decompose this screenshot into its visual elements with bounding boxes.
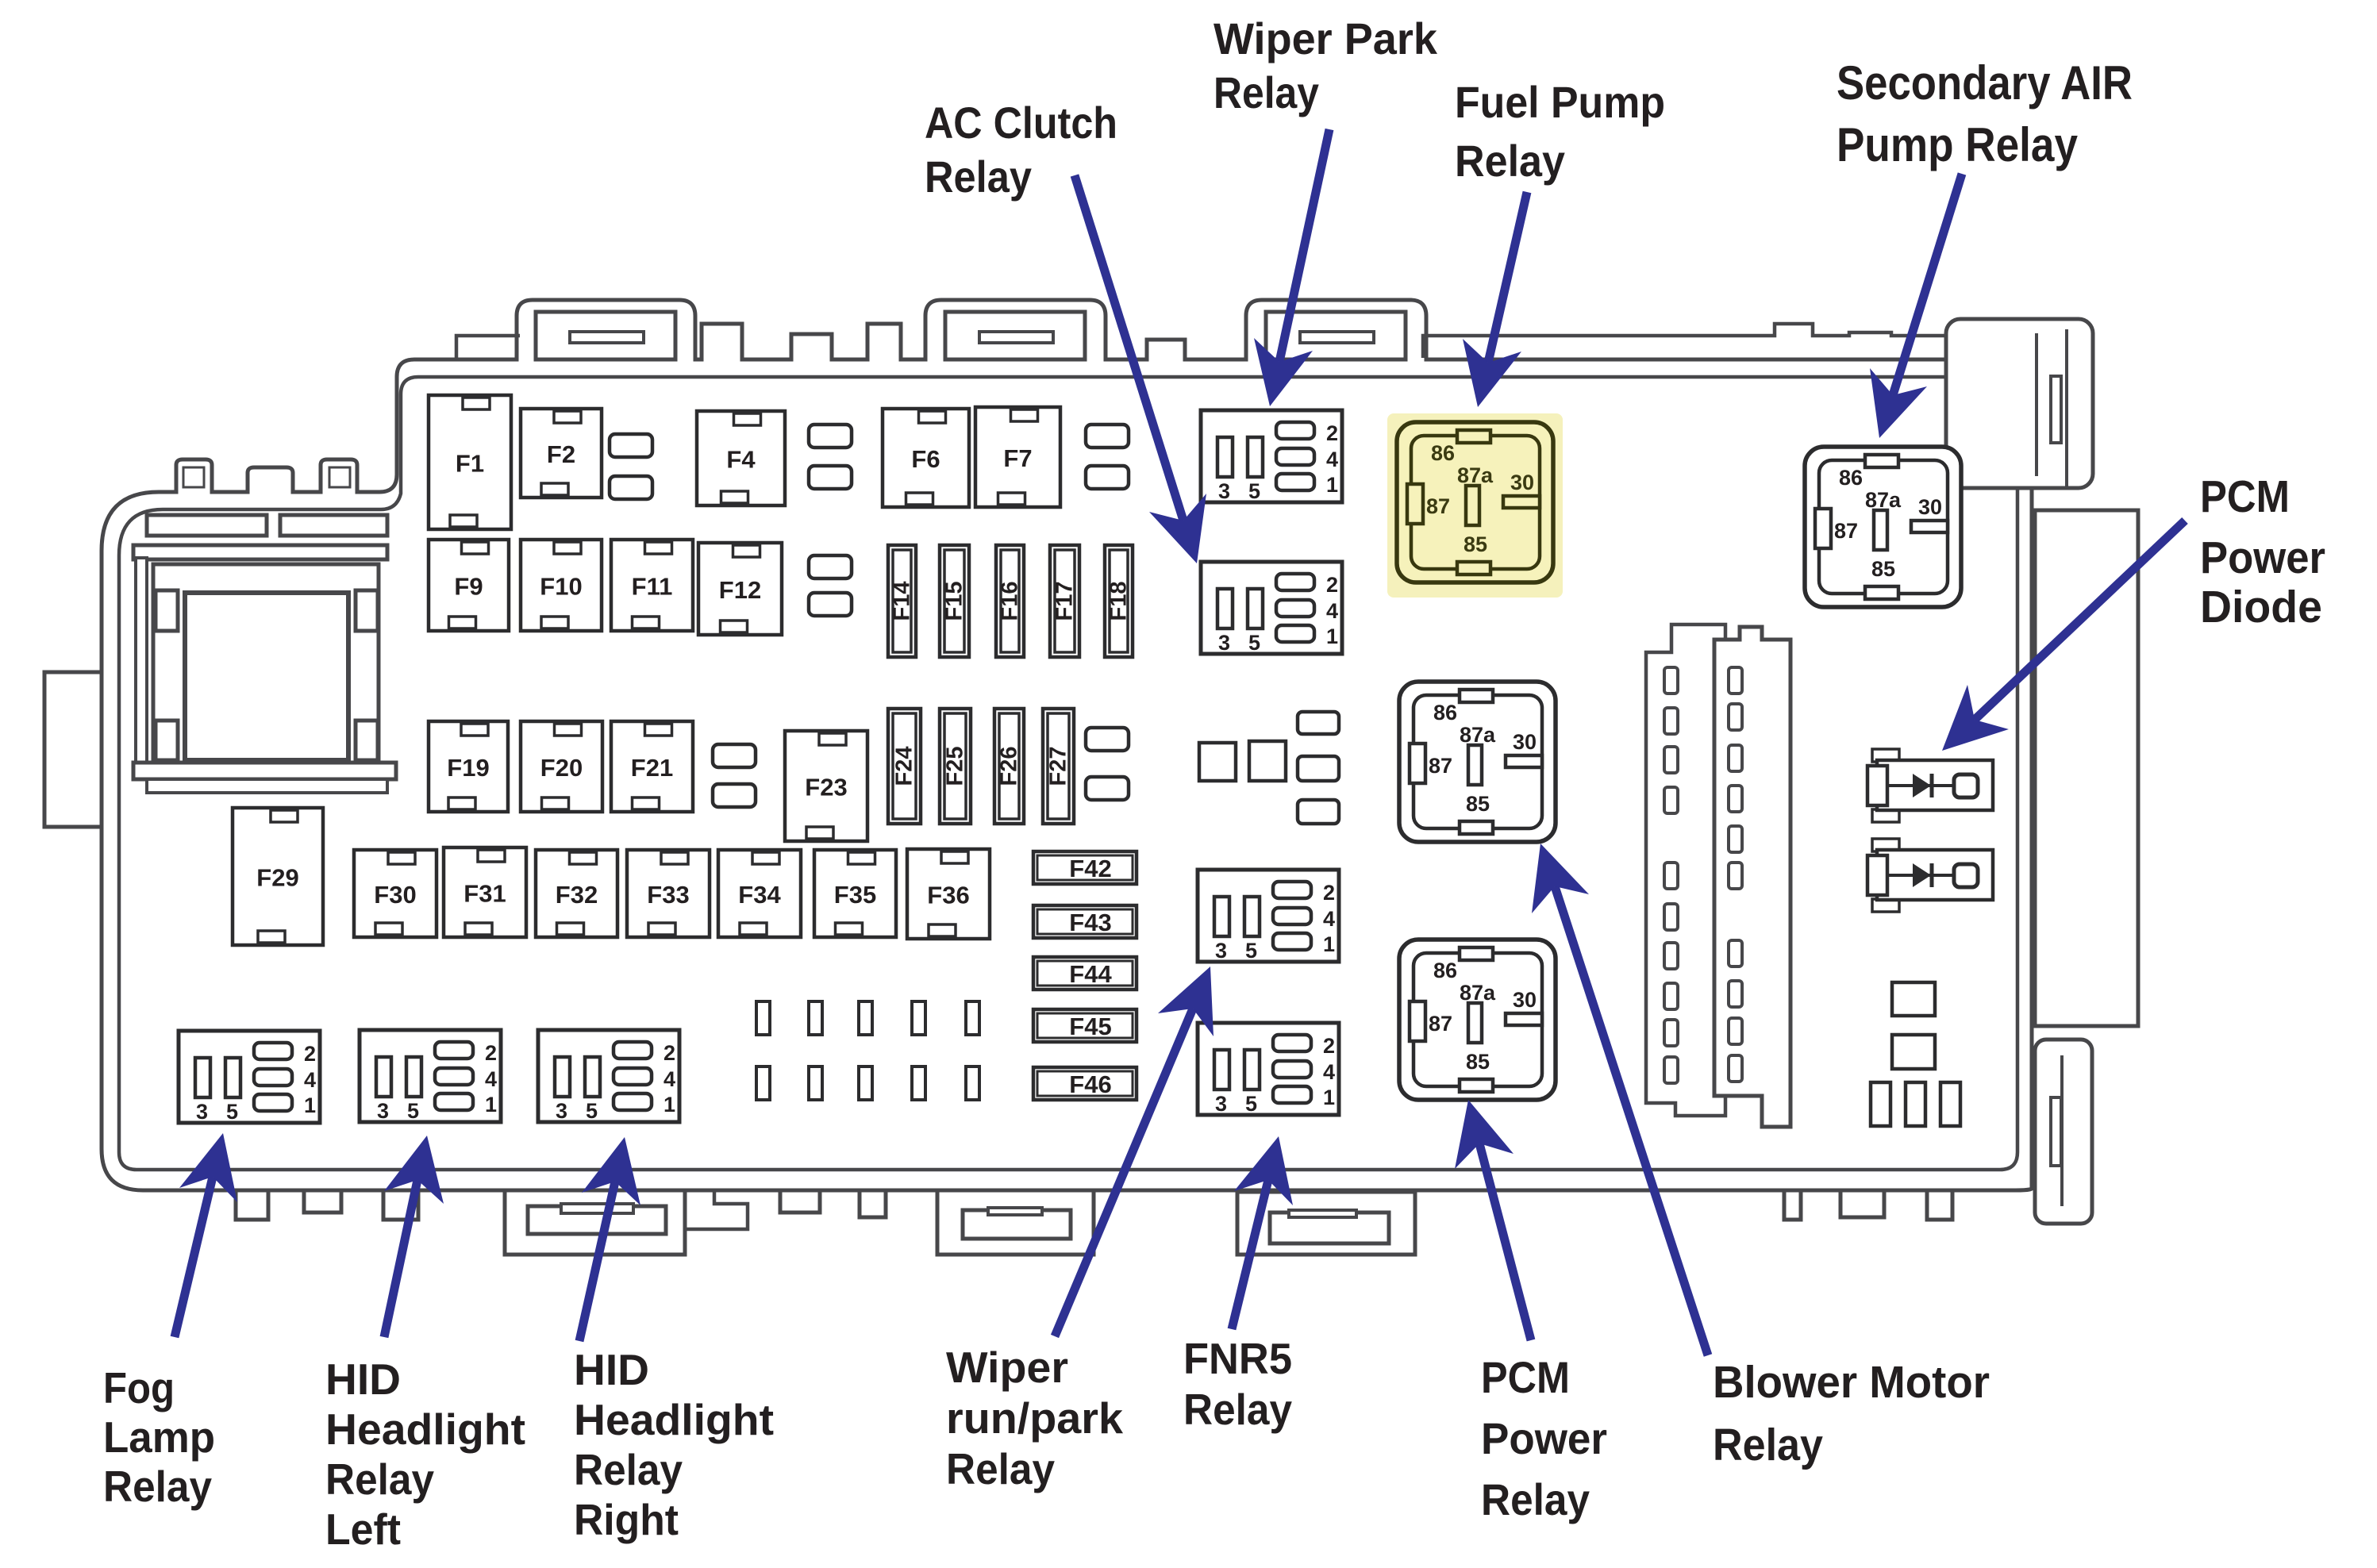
svg-text:F11: F11 (632, 573, 673, 601)
svg-text:F6: F6 (911, 445, 940, 473)
svg-text:Diode: Diode (2200, 582, 2322, 632)
svg-text:1: 1 (1323, 1086, 1335, 1109)
svg-text:Relay: Relay (925, 152, 1032, 202)
svg-text:run/park: run/park (946, 1393, 1123, 1443)
svg-text:Relay: Relay (103, 1462, 212, 1511)
svg-text:86: 86 (1839, 466, 1863, 490)
svg-text:F23: F23 (805, 774, 847, 801)
svg-text:F35: F35 (834, 881, 876, 909)
svg-text:5: 5 (1248, 479, 1260, 503)
svg-text:Right: Right (574, 1495, 679, 1544)
svg-text:F19: F19 (447, 754, 489, 782)
svg-text:2: 2 (1323, 881, 1335, 905)
svg-text:Relay: Relay (1183, 1385, 1292, 1434)
svg-text:Pump Relay: Pump Relay (1837, 118, 2079, 171)
svg-text:F32: F32 (556, 881, 598, 909)
svg-text:2: 2 (663, 1041, 675, 1065)
svg-text:5: 5 (586, 1099, 598, 1123)
svg-text:F4: F4 (726, 446, 756, 474)
svg-text:Relay: Relay (325, 1455, 434, 1504)
svg-text:2: 2 (304, 1042, 316, 1066)
svg-text:2: 2 (1326, 573, 1338, 597)
svg-text:3: 3 (196, 1100, 208, 1124)
svg-text:5: 5 (226, 1100, 238, 1124)
svg-text:Relay: Relay (574, 1445, 683, 1494)
svg-text:5: 5 (1245, 1092, 1257, 1116)
svg-text:5: 5 (1245, 939, 1257, 963)
svg-text:4: 4 (1323, 1060, 1335, 1084)
svg-text:Relay: Relay (1214, 67, 1319, 117)
svg-text:4: 4 (1326, 599, 1338, 623)
svg-text:F1: F1 (456, 450, 484, 478)
svg-text:F14: F14 (890, 582, 915, 621)
svg-text:F45: F45 (1069, 1013, 1111, 1040)
svg-text:30: 30 (1513, 988, 1537, 1012)
svg-text:F10: F10 (540, 573, 582, 601)
svg-text:AC Clutch: AC Clutch (925, 98, 1117, 148)
svg-text:F42: F42 (1069, 855, 1111, 882)
svg-text:Fuel Pump: Fuel Pump (1455, 77, 1665, 127)
svg-text:4: 4 (485, 1067, 497, 1091)
svg-text:30: 30 (1513, 730, 1537, 754)
svg-text:F34: F34 (738, 881, 781, 909)
svg-text:85: 85 (1466, 792, 1490, 816)
svg-text:1: 1 (304, 1093, 316, 1117)
svg-text:4: 4 (1326, 448, 1338, 471)
svg-text:3: 3 (1215, 939, 1227, 963)
svg-text:F43: F43 (1069, 909, 1111, 936)
svg-text:HID: HID (325, 1355, 401, 1404)
svg-text:F7: F7 (1003, 444, 1032, 472)
svg-text:F44: F44 (1069, 960, 1112, 988)
svg-text:85: 85 (1464, 532, 1487, 556)
svg-text:F21: F21 (631, 754, 673, 782)
svg-text:PCM: PCM (1481, 1352, 1570, 1402)
svg-text:Blower Motor: Blower Motor (1713, 1357, 1990, 1408)
svg-text:3: 3 (1218, 479, 1230, 503)
svg-text:Relay: Relay (1713, 1420, 1823, 1470)
svg-text:4: 4 (1323, 907, 1335, 931)
svg-text:F29: F29 (256, 864, 298, 892)
svg-text:3: 3 (1218, 631, 1230, 655)
svg-text:1: 1 (1323, 932, 1335, 956)
svg-text:PCM: PCM (2200, 471, 2290, 522)
svg-text:Headlight: Headlight (325, 1405, 525, 1454)
svg-text:4: 4 (663, 1067, 675, 1091)
svg-text:HID: HID (574, 1345, 649, 1394)
svg-text:87a: 87a (1865, 488, 1902, 512)
svg-text:F24: F24 (892, 747, 917, 786)
svg-text:86: 86 (1433, 701, 1457, 724)
svg-text:Power: Power (2200, 532, 2325, 583)
svg-text:3: 3 (377, 1099, 389, 1123)
svg-text:Fog: Fog (103, 1363, 175, 1412)
svg-text:Relay: Relay (946, 1444, 1055, 1493)
svg-text:Relay: Relay (1455, 136, 1565, 186)
svg-text:85: 85 (1466, 1050, 1490, 1074)
svg-text:Lamp: Lamp (103, 1412, 215, 1462)
svg-text:85: 85 (1871, 557, 1895, 581)
svg-text:1: 1 (485, 1093, 497, 1116)
svg-text:1: 1 (663, 1093, 675, 1116)
svg-text:1: 1 (1326, 473, 1338, 497)
svg-text:Relay: Relay (1481, 1474, 1590, 1524)
svg-text:F31: F31 (463, 880, 506, 908)
svg-text:87: 87 (1429, 1012, 1452, 1036)
svg-text:Left: Left (325, 1505, 401, 1554)
svg-text:F9: F9 (454, 573, 483, 601)
svg-text:FNR5: FNR5 (1183, 1334, 1292, 1383)
svg-text:1: 1 (1326, 625, 1338, 648)
svg-text:86: 86 (1433, 959, 1457, 982)
svg-text:3: 3 (556, 1099, 567, 1123)
svg-text:86: 86 (1431, 441, 1455, 465)
svg-text:87a: 87a (1457, 463, 1494, 487)
svg-text:F17: F17 (1052, 582, 1078, 621)
svg-text:30: 30 (1510, 471, 1534, 494)
svg-text:87: 87 (1426, 494, 1450, 518)
svg-text:5: 5 (407, 1099, 419, 1123)
svg-text:30: 30 (1918, 495, 1942, 519)
svg-text:F26: F26 (997, 747, 1022, 786)
svg-text:F16: F16 (998, 582, 1023, 621)
svg-text:Wiper Park: Wiper Park (1214, 13, 1438, 63)
svg-text:2: 2 (1326, 421, 1338, 445)
svg-text:2: 2 (1323, 1034, 1335, 1058)
svg-text:F33: F33 (647, 881, 689, 909)
svg-text:2: 2 (485, 1041, 497, 1065)
svg-text:F2: F2 (547, 440, 575, 468)
svg-text:87a: 87a (1460, 723, 1496, 747)
svg-text:87a: 87a (1460, 981, 1496, 1005)
svg-text:F20: F20 (540, 754, 583, 782)
svg-text:Headlight: Headlight (574, 1395, 774, 1444)
svg-text:3: 3 (1215, 1092, 1227, 1116)
svg-text:5: 5 (1248, 631, 1260, 655)
svg-text:F27: F27 (1046, 747, 1071, 786)
svg-text:Wiper: Wiper (946, 1343, 1068, 1392)
svg-text:F18: F18 (1106, 582, 1132, 621)
svg-text:F46: F46 (1069, 1070, 1111, 1098)
svg-text:F12: F12 (719, 576, 761, 604)
svg-text:Power: Power (1481, 1413, 1607, 1463)
svg-text:87: 87 (1429, 754, 1452, 778)
svg-text:F36: F36 (927, 882, 969, 909)
svg-text:Secondary AIR: Secondary AIR (1837, 56, 2133, 110)
svg-text:F30: F30 (374, 881, 416, 909)
svg-text:4: 4 (304, 1068, 316, 1092)
svg-text:F15: F15 (942, 582, 967, 621)
svg-text:F25: F25 (943, 747, 968, 786)
svg-text:87: 87 (1834, 519, 1858, 543)
